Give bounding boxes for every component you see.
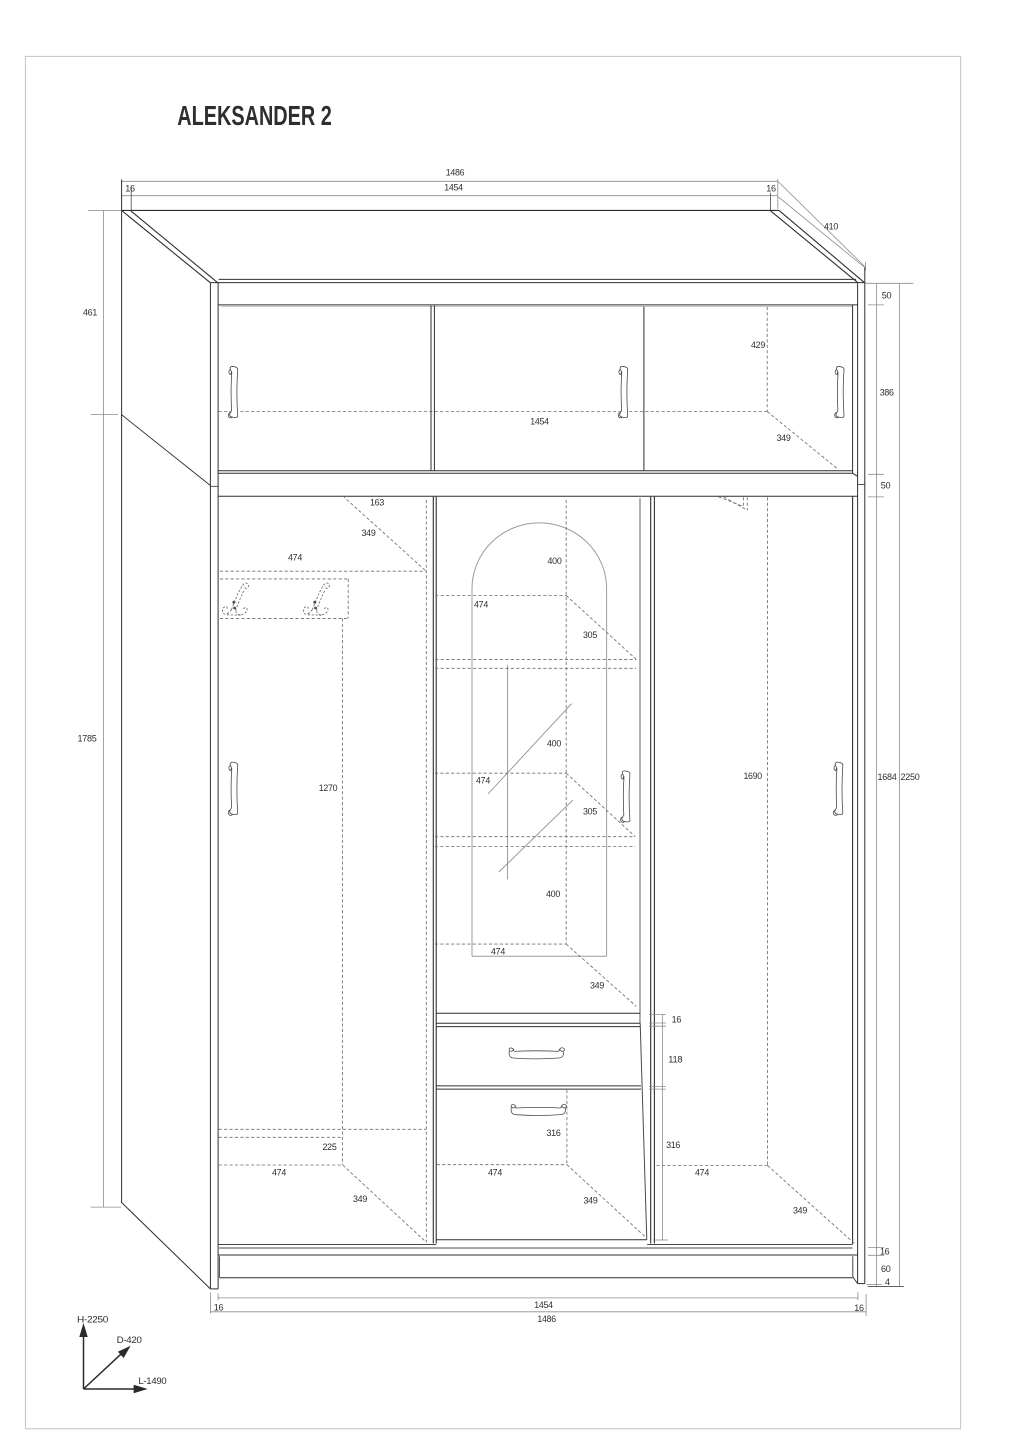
svg-text:316: 316 [547,1128,561,1139]
svg-text:1486: 1486 [537,1314,556,1325]
svg-text:118: 118 [668,1054,682,1065]
svg-text:386: 386 [880,388,894,399]
svg-text:429: 429 [751,340,765,351]
svg-text:2250: 2250 [901,772,920,783]
svg-text:60: 60 [881,1264,891,1275]
svg-text:16: 16 [214,1302,224,1313]
svg-text:1454: 1454 [444,183,463,194]
svg-text:D-420: D-420 [117,1335,142,1346]
svg-text:16: 16 [854,1303,864,1314]
svg-text:305: 305 [583,806,597,817]
svg-text:400: 400 [546,889,560,900]
svg-text:16: 16 [766,183,776,194]
svg-text:1454: 1454 [530,416,549,427]
svg-text:1486: 1486 [446,168,465,179]
svg-text:400: 400 [548,556,562,567]
svg-text:474: 474 [476,775,491,786]
svg-text:349: 349 [584,1195,598,1206]
svg-text:474: 474 [491,946,506,957]
svg-text:1785: 1785 [78,733,97,744]
svg-text:400: 400 [547,738,561,749]
svg-text:410: 410 [824,222,838,233]
svg-text:16: 16 [880,1246,890,1257]
svg-text:474: 474 [272,1167,287,1178]
svg-text:474: 474 [695,1167,710,1178]
svg-text:474: 474 [488,1167,503,1178]
svg-text:16: 16 [672,1014,682,1025]
svg-text:1270: 1270 [319,783,338,794]
svg-text:ALEKSANDER 2: ALEKSANDER 2 [177,100,331,131]
svg-text:349: 349 [793,1205,807,1216]
svg-text:1454: 1454 [534,1300,553,1311]
svg-text:461: 461 [83,307,97,318]
svg-text:L-1490: L-1490 [138,1376,166,1387]
svg-text:1684: 1684 [878,772,898,783]
svg-text:225: 225 [323,1142,337,1153]
svg-text:50: 50 [881,480,891,491]
svg-text:349: 349 [362,528,376,539]
svg-text:474: 474 [288,552,303,563]
svg-text:1690: 1690 [743,771,762,782]
svg-text:349: 349 [590,980,604,991]
svg-text:349: 349 [777,433,791,444]
svg-text:H-2250: H-2250 [77,1314,108,1325]
svg-text:305: 305 [583,630,597,641]
svg-text:349: 349 [353,1194,367,1205]
svg-text:474: 474 [474,599,489,610]
svg-text:163: 163 [370,497,384,508]
svg-text:50: 50 [882,290,892,301]
svg-text:16: 16 [125,184,135,195]
svg-text:316: 316 [666,1140,680,1151]
